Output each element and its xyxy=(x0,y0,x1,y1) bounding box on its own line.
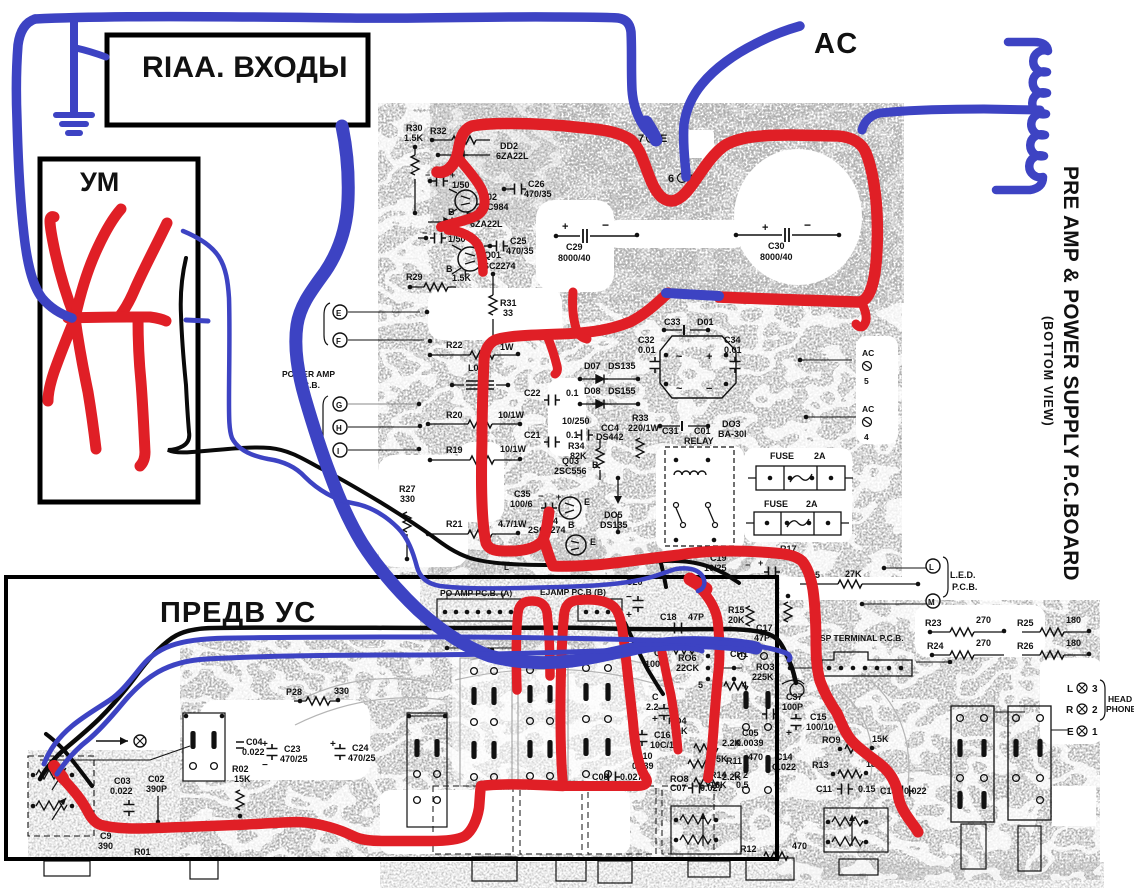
svg-text:2.2: 2.2 xyxy=(646,702,659,712)
svg-text:DO5: DO5 xyxy=(604,510,623,520)
svg-text:RO6: RO6 xyxy=(678,653,697,663)
svg-text:4: 4 xyxy=(864,432,869,442)
svg-text:RO3: RO3 xyxy=(756,662,775,672)
svg-text:RO8: RO8 xyxy=(670,774,689,784)
svg-text:~: ~ xyxy=(676,351,683,363)
svg-text:C29: C29 xyxy=(566,242,583,252)
svg-text:C04: C04 xyxy=(246,737,263,747)
svg-text:27K: 27K xyxy=(845,569,862,579)
svg-text:C31: C31 xyxy=(662,426,679,436)
svg-text:BA-30I: BA-30I xyxy=(718,429,747,439)
svg-text:R02: R02 xyxy=(232,764,249,774)
svg-text:ПРЕДВ УС: ПРЕДВ УС xyxy=(160,597,316,629)
svg-text:D07: D07 xyxy=(584,361,601,371)
svg-text:+: + xyxy=(330,739,336,750)
svg-text:390: 390 xyxy=(98,841,113,851)
svg-text:220/1W: 220/1W xyxy=(628,423,660,433)
svg-text:C25: C25 xyxy=(510,236,527,246)
svg-text:R: R xyxy=(1066,705,1074,716)
svg-text:E: E xyxy=(584,497,590,507)
svg-text:C21: C21 xyxy=(524,430,541,440)
svg-text:18K: 18K xyxy=(710,780,727,790)
svg-text:FUSE: FUSE xyxy=(764,499,788,509)
svg-text:390P: 390P xyxy=(146,784,167,794)
svg-text:DS135: DS135 xyxy=(600,520,628,530)
svg-text:−: − xyxy=(538,491,543,501)
svg-text:10/1W: 10/1W xyxy=(498,410,525,420)
svg-text:(BOTTOM VIEW): (BOTTOM VIEW) xyxy=(1041,316,1055,427)
svg-text:0.022: 0.022 xyxy=(110,786,133,796)
svg-text:+: + xyxy=(556,492,561,502)
svg-text:DO3: DO3 xyxy=(722,419,741,429)
svg-text:H: H xyxy=(336,424,342,433)
svg-text:3: 3 xyxy=(1092,684,1098,695)
svg-text:180: 180 xyxy=(1066,615,1081,625)
svg-text:R15: R15 xyxy=(728,605,745,615)
svg-text:10/1W: 10/1W xyxy=(500,444,527,454)
svg-text:R11: R11 xyxy=(726,756,742,766)
svg-text:0.1: 0.1 xyxy=(566,430,579,440)
svg-text:C 2: C 2 xyxy=(734,770,748,780)
svg-text:R24: R24 xyxy=(927,641,944,651)
svg-text:R19: R19 xyxy=(446,445,463,455)
svg-text:20K: 20K xyxy=(728,615,745,625)
svg-text:+: + xyxy=(706,351,712,363)
svg-text:R01: R01 xyxy=(134,847,151,857)
svg-text:100P: 100P xyxy=(782,702,803,712)
svg-text:B: B xyxy=(568,520,575,530)
svg-text:C16: C16 xyxy=(654,730,671,740)
svg-text:R13: R13 xyxy=(812,760,829,770)
svg-text:HEAD: HEAD xyxy=(1108,694,1132,704)
svg-text:270: 270 xyxy=(976,615,991,625)
svg-text:E: E xyxy=(590,537,596,547)
svg-text:DS135: DS135 xyxy=(608,361,636,371)
svg-text:−: − xyxy=(602,218,609,232)
svg-text:RIAA. ВХОДЫ: RIAA. ВХОДЫ xyxy=(142,51,348,84)
svg-text:R27: R27 xyxy=(399,484,416,494)
svg-text:F: F xyxy=(336,337,341,346)
svg-text:330: 330 xyxy=(334,686,349,696)
svg-text:DS442: DS442 xyxy=(596,432,624,442)
svg-text:1.5K: 1.5K xyxy=(452,273,472,283)
svg-text:R33: R33 xyxy=(632,413,649,423)
svg-text:470/25: 470/25 xyxy=(280,754,308,764)
svg-text:C30: C30 xyxy=(768,241,785,251)
svg-text:R29: R29 xyxy=(406,272,423,282)
svg-text:33: 33 xyxy=(503,308,513,318)
svg-text:+: + xyxy=(786,728,792,739)
svg-text:L: L xyxy=(929,563,934,572)
svg-text:0.5: 0.5 xyxy=(736,780,749,790)
svg-text:225K: 225K xyxy=(752,672,774,682)
svg-text:C07: C07 xyxy=(670,783,687,793)
svg-text:P.C.B.: P.C.B. xyxy=(952,582,977,592)
svg-text:~: ~ xyxy=(676,383,683,395)
svg-text:22CK: 22CK xyxy=(676,663,700,673)
svg-text:1: 1 xyxy=(1092,727,1098,738)
svg-text:8000/40: 8000/40 xyxy=(760,252,793,262)
svg-text:R31: R31 xyxy=(500,298,517,308)
svg-text:AC: AC xyxy=(862,404,874,414)
svg-text:FUSE: FUSE xyxy=(770,451,794,461)
svg-text:RELAY: RELAY xyxy=(684,436,714,446)
svg-text:6ZA22L: 6ZA22L xyxy=(496,151,529,161)
svg-text:B: B xyxy=(592,460,599,470)
svg-text:2A: 2A xyxy=(806,499,818,509)
svg-text:C11: C11 xyxy=(816,784,832,794)
svg-text:B: B xyxy=(448,207,455,217)
svg-text:L.E.D.: L.E.D. xyxy=(950,570,976,580)
svg-text:6: 6 xyxy=(668,173,674,185)
svg-text:180: 180 xyxy=(1066,638,1081,648)
svg-text:5: 5 xyxy=(864,376,869,386)
svg-text:E: E xyxy=(336,309,342,318)
svg-text:D01: D01 xyxy=(697,317,714,327)
svg-text:−: − xyxy=(262,760,268,771)
svg-text:PHONE: PHONE xyxy=(1106,704,1134,714)
svg-text:+: + xyxy=(652,714,658,725)
svg-text:C08: C08 xyxy=(592,772,609,782)
svg-text:270: 270 xyxy=(976,638,991,648)
svg-text:4: 4 xyxy=(742,680,747,690)
svg-text:2: 2 xyxy=(1092,705,1098,716)
svg-text:DD2: DD2 xyxy=(500,141,518,151)
svg-text:C9: C9 xyxy=(100,831,112,841)
svg-text:AC: AC xyxy=(862,348,874,358)
svg-text:470/25: 470/25 xyxy=(348,753,376,763)
svg-text:100/6: 100/6 xyxy=(510,499,533,509)
svg-text:+: + xyxy=(562,221,568,233)
svg-text:L: L xyxy=(1067,684,1073,695)
svg-text:2SC556: 2SC556 xyxy=(554,466,587,476)
svg-text:R21: R21 xyxy=(446,519,463,529)
svg-text:0.01: 0.01 xyxy=(724,345,742,355)
svg-text:+: + xyxy=(758,558,763,568)
svg-text:0.01: 0.01 xyxy=(638,345,656,355)
svg-text:−: − xyxy=(804,218,811,232)
svg-text:C24: C24 xyxy=(352,743,369,753)
svg-text:15K: 15K xyxy=(234,774,251,784)
svg-text:2A: 2A xyxy=(814,451,826,461)
svg-text:SP TERMINAL P.C.B.: SP TERMINAL P.C.B. xyxy=(820,633,904,643)
svg-text:+: + xyxy=(626,610,632,621)
svg-text:470/35: 470/35 xyxy=(524,189,552,199)
svg-text:10/250: 10/250 xyxy=(562,416,590,426)
svg-text:M: M xyxy=(928,598,935,607)
svg-text:R12: R12 xyxy=(740,844,757,854)
svg-text:R26: R26 xyxy=(1017,641,1034,651)
svg-text:D08: D08 xyxy=(584,386,601,396)
svg-text:C02: C02 xyxy=(148,774,165,784)
svg-text:C: C xyxy=(652,692,659,702)
svg-text:−: − xyxy=(626,592,632,603)
svg-text:RO9: RO9 xyxy=(822,735,841,745)
svg-text:C05: C05 xyxy=(742,728,759,738)
svg-text:G: G xyxy=(336,401,342,410)
svg-text:R22: R22 xyxy=(446,340,463,350)
svg-text:PRE AMP & POWER SUPPLY P.C.BOA: PRE AMP & POWER SUPPLY P.C.BOARD xyxy=(1059,166,1082,581)
svg-text:R23: R23 xyxy=(925,618,942,628)
svg-text:0.0039: 0.0039 xyxy=(736,738,764,748)
svg-text:C34: C34 xyxy=(724,335,741,345)
svg-text:0.022: 0.022 xyxy=(904,786,927,796)
svg-text:0.1: 0.1 xyxy=(566,388,579,398)
svg-text:4.7/1W: 4.7/1W xyxy=(498,519,527,529)
svg-text:Q03: Q03 xyxy=(562,456,579,466)
svg-text:470: 470 xyxy=(748,752,763,762)
svg-text:C35: C35 xyxy=(514,489,531,499)
svg-text:УМ: УМ xyxy=(80,167,119,197)
svg-text:C23: C23 xyxy=(284,744,301,754)
svg-text:АС: АС xyxy=(814,28,859,60)
svg-text:C26: C26 xyxy=(528,179,545,189)
svg-text:15K: 15K xyxy=(872,734,889,744)
svg-text:470/35: 470/35 xyxy=(506,246,534,256)
svg-text:C22: C22 xyxy=(524,388,541,398)
svg-text:R34: R34 xyxy=(568,441,585,451)
svg-text:470: 470 xyxy=(792,841,807,851)
svg-text:R32: R32 xyxy=(430,126,447,136)
svg-text:P28: P28 xyxy=(286,687,302,697)
svg-text:5: 5 xyxy=(698,680,703,690)
svg-text:POWER AMP: POWER AMP xyxy=(282,369,335,379)
svg-text:C33: C33 xyxy=(664,317,681,327)
svg-text:8000/40: 8000/40 xyxy=(558,253,591,263)
svg-text:+: + xyxy=(262,739,268,750)
svg-text:R30: R30 xyxy=(406,123,423,133)
svg-text:C15: C15 xyxy=(810,712,827,722)
svg-text:1/50: 1/50 xyxy=(452,180,470,190)
svg-text:R25: R25 xyxy=(1017,618,1034,628)
svg-text:47P: 47P xyxy=(688,612,704,622)
svg-text:−: − xyxy=(425,170,430,180)
svg-text:C18: C18 xyxy=(660,612,677,622)
svg-text:DS155: DS155 xyxy=(608,386,636,396)
svg-text:100/10: 100/10 xyxy=(806,722,834,732)
svg-text:330: 330 xyxy=(400,494,415,504)
svg-text:E: E xyxy=(1067,727,1074,738)
svg-text:C32: C32 xyxy=(638,335,655,345)
svg-text:1.5K: 1.5K xyxy=(404,133,424,143)
svg-text:−: − xyxy=(706,383,712,395)
svg-text:0.15: 0.15 xyxy=(858,784,876,794)
svg-text:R20: R20 xyxy=(446,410,463,420)
svg-text:C03: C03 xyxy=(114,776,131,786)
svg-text:−: − xyxy=(745,560,750,570)
svg-text:I: I xyxy=(337,447,339,456)
svg-text:+: + xyxy=(762,222,768,234)
